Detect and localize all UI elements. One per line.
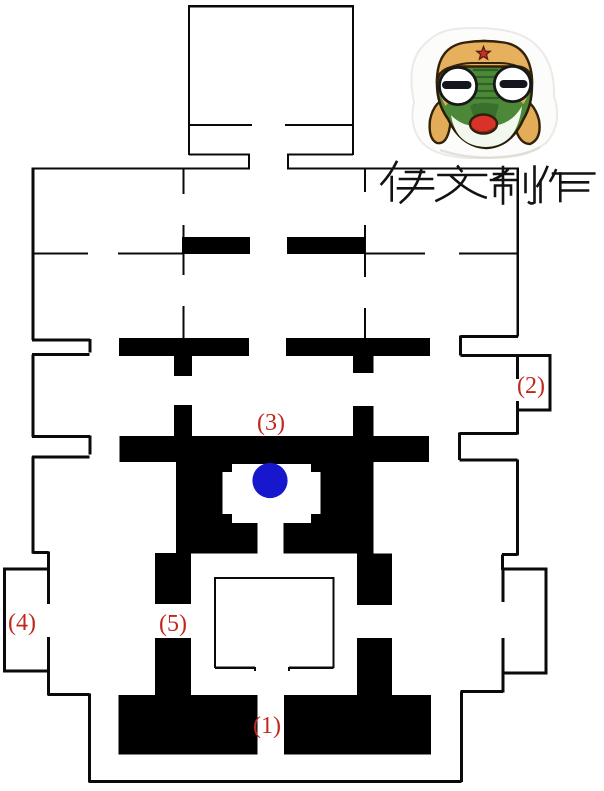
- svg-text:(4): (4): [8, 610, 36, 636]
- svg-text:(3): (3): [257, 410, 285, 436]
- svg-text:(1): (1): [253, 713, 281, 739]
- svg-text:(2): (2): [517, 373, 545, 399]
- svg-text:(5): (5): [159, 611, 187, 637]
